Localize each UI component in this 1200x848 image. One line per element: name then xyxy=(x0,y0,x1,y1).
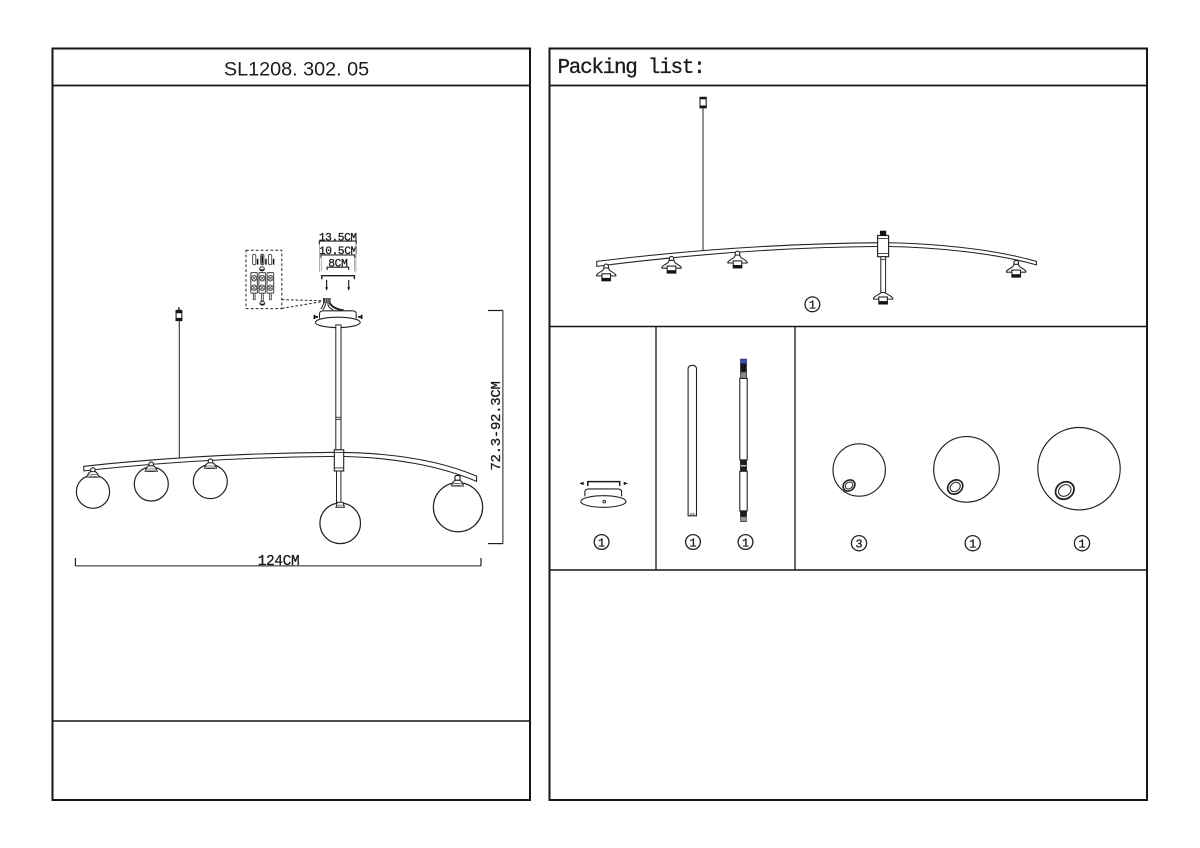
svg-text:13.5CM: 13.5CM xyxy=(319,232,357,244)
svg-text:1: 1 xyxy=(742,536,749,550)
svg-text:124CM: 124CM xyxy=(258,554,300,570)
svg-text:1: 1 xyxy=(689,536,696,550)
svg-text:72.3-92.3CM: 72.3-92.3CM xyxy=(489,381,505,470)
svg-text:10.5CM: 10.5CM xyxy=(319,246,357,258)
svg-text:SL1208. 302. 05: SL1208. 302. 05 xyxy=(224,58,369,80)
svg-text:1: 1 xyxy=(598,536,605,550)
svg-text:1: 1 xyxy=(1078,538,1085,552)
svg-text:8CM: 8CM xyxy=(328,258,347,270)
svg-text:3: 3 xyxy=(855,538,862,552)
svg-text:1: 1 xyxy=(969,538,976,552)
svg-text:Packing list:: Packing list: xyxy=(558,57,705,80)
svg-text:1: 1 xyxy=(809,299,816,313)
